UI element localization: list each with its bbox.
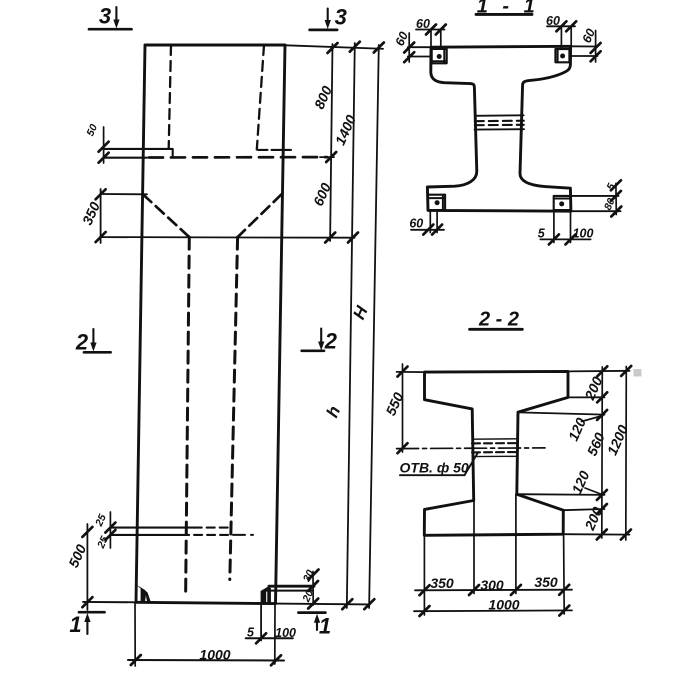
svg-text:50: 50 — [84, 122, 100, 138]
svg-text:2 - 2: 2 - 2 — [478, 309, 519, 331]
svg-text:5: 5 — [247, 626, 255, 640]
svg-text:2: 2 — [75, 330, 89, 355]
svg-text:60: 60 — [416, 17, 430, 31]
svg-text:60: 60 — [409, 216, 423, 230]
svg-text:120: 120 — [568, 468, 592, 496]
svg-text:500: 500 — [65, 542, 89, 570]
svg-text:3: 3 — [335, 5, 347, 30]
svg-text:5: 5 — [538, 227, 546, 241]
svg-text:1: 1 — [69, 612, 81, 637]
svg-text:350: 350 — [79, 199, 103, 227]
svg-text:1400: 1400 — [332, 112, 359, 147]
svg-text:350: 350 — [534, 574, 558, 590]
svg-text:ОТВ. ф 50: ОТВ. ф 50 — [400, 460, 469, 476]
svg-text:H: H — [349, 303, 372, 323]
svg-text:30: 30 — [301, 568, 317, 584]
svg-text:350: 350 — [430, 575, 454, 591]
svg-text:60: 60 — [393, 30, 411, 48]
svg-text:h: h — [323, 403, 345, 420]
svg-text:60: 60 — [546, 14, 560, 28]
svg-text:100: 100 — [573, 226, 594, 240]
svg-text:2: 2 — [324, 329, 338, 354]
svg-text:100: 100 — [275, 626, 296, 640]
svg-text:25: 25 — [93, 512, 109, 529]
svg-text:560: 560 — [584, 430, 608, 458]
svg-text:120: 120 — [565, 415, 589, 443]
svg-text:1: 1 — [319, 614, 331, 639]
svg-text:300: 300 — [480, 577, 504, 593]
svg-text:1000: 1000 — [199, 647, 230, 663]
svg-text:3: 3 — [99, 4, 111, 29]
svg-text:1200: 1200 — [604, 422, 631, 457]
svg-text:1000: 1000 — [488, 597, 519, 613]
